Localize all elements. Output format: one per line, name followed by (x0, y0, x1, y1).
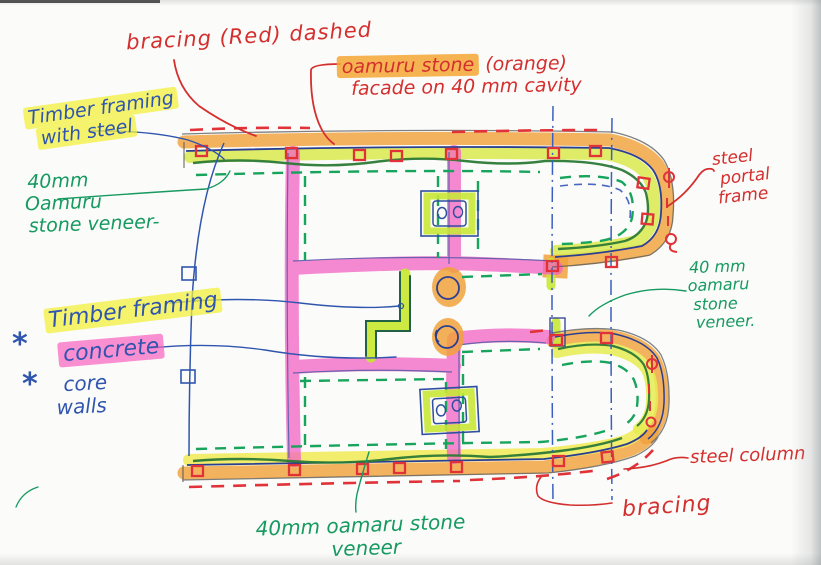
grid-lines (181, 106, 612, 502)
leader-steel-portal (668, 169, 714, 206)
column-blobs (432, 267, 466, 356)
asterisk-concrete: * (22, 368, 38, 403)
grid-marker-square-lower (181, 370, 195, 383)
label-veneer-left: 40mm Oamuru stone veneer- (27, 168, 160, 238)
asterisk-timber: * (12, 328, 28, 363)
leader-bracing-bottom (537, 477, 612, 505)
grid-line-right-1 (552, 106, 553, 502)
core-wall-horizontal-upper (293, 263, 556, 268)
leader-veneer-right (589, 289, 686, 316)
label-facade: oamuru stone (orange) facade on 40 mm ca… (337, 53, 582, 101)
label-veneer-bottom: 40mm oamaru stone veneer (255, 510, 466, 563)
stray-green-stroke (16, 487, 38, 507)
bracing-squares (192, 146, 653, 476)
core-wall-vertical-main (292, 153, 294, 460)
timber-zigzag-wall (366, 272, 410, 358)
core-wall-vertical-lower (453, 341, 454, 457)
label-veneer-right: 40 mm oamaru stone veneer. (689, 257, 756, 333)
leader-concrete (150, 345, 396, 358)
core-wall-horizontal-right (454, 335, 548, 339)
label-core-walls: core walls (63, 371, 109, 419)
bracing-dashed-lines (189, 128, 653, 487)
grid-line-right-2 (611, 118, 612, 500)
facade-highlight: oamuru stone (337, 54, 480, 78)
leader-bracing-top (174, 60, 256, 136)
interior-green-dashed (196, 171, 638, 450)
label-steel-portal: steel portal frame (711, 145, 773, 209)
label-steel-column: steel column (690, 444, 806, 469)
core-wall-horizontal-lower (293, 364, 454, 367)
wing-blue-dashed (560, 184, 630, 224)
scanned-sketch-page: bracing (Red) dashed oamuru stone (orang… (0, 0, 821, 565)
leader-facade (311, 64, 340, 144)
